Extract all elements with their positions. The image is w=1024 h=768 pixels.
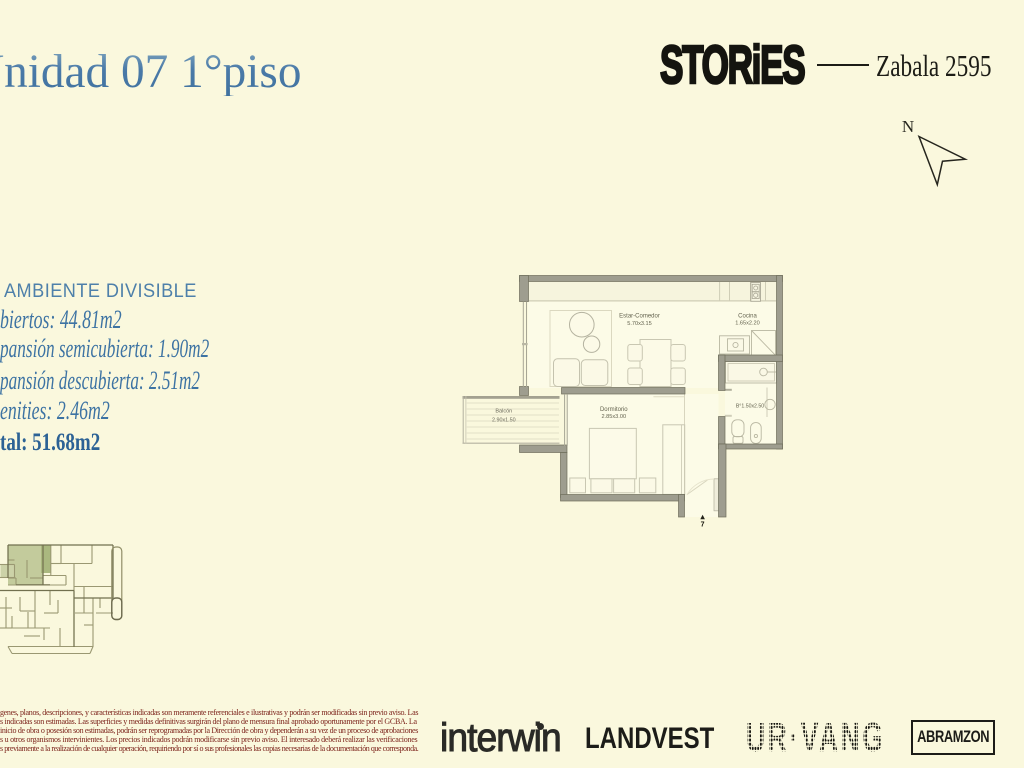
svg-text:7: 7 bbox=[701, 522, 705, 529]
svg-text:Cocina: Cocina bbox=[738, 314, 757, 320]
svg-text:5.70x3.15: 5.70x3.15 bbox=[627, 321, 652, 327]
svg-text:B°1.50x2.50: B°1.50x2.50 bbox=[736, 404, 764, 410]
svg-text:Balcón: Balcón bbox=[495, 409, 512, 415]
svg-text:1.65x2.20: 1.65x2.20 bbox=[735, 321, 760, 327]
svg-text:2.90x1.50: 2.90x1.50 bbox=[492, 418, 516, 424]
svg-text:Dormitorio: Dormitorio bbox=[600, 407, 628, 413]
svg-text:N: N bbox=[902, 117, 914, 136]
svg-text:Estar-Comedor: Estar-Comedor bbox=[619, 314, 660, 320]
svg-text:2.85x3.00: 2.85x3.00 bbox=[602, 414, 627, 420]
